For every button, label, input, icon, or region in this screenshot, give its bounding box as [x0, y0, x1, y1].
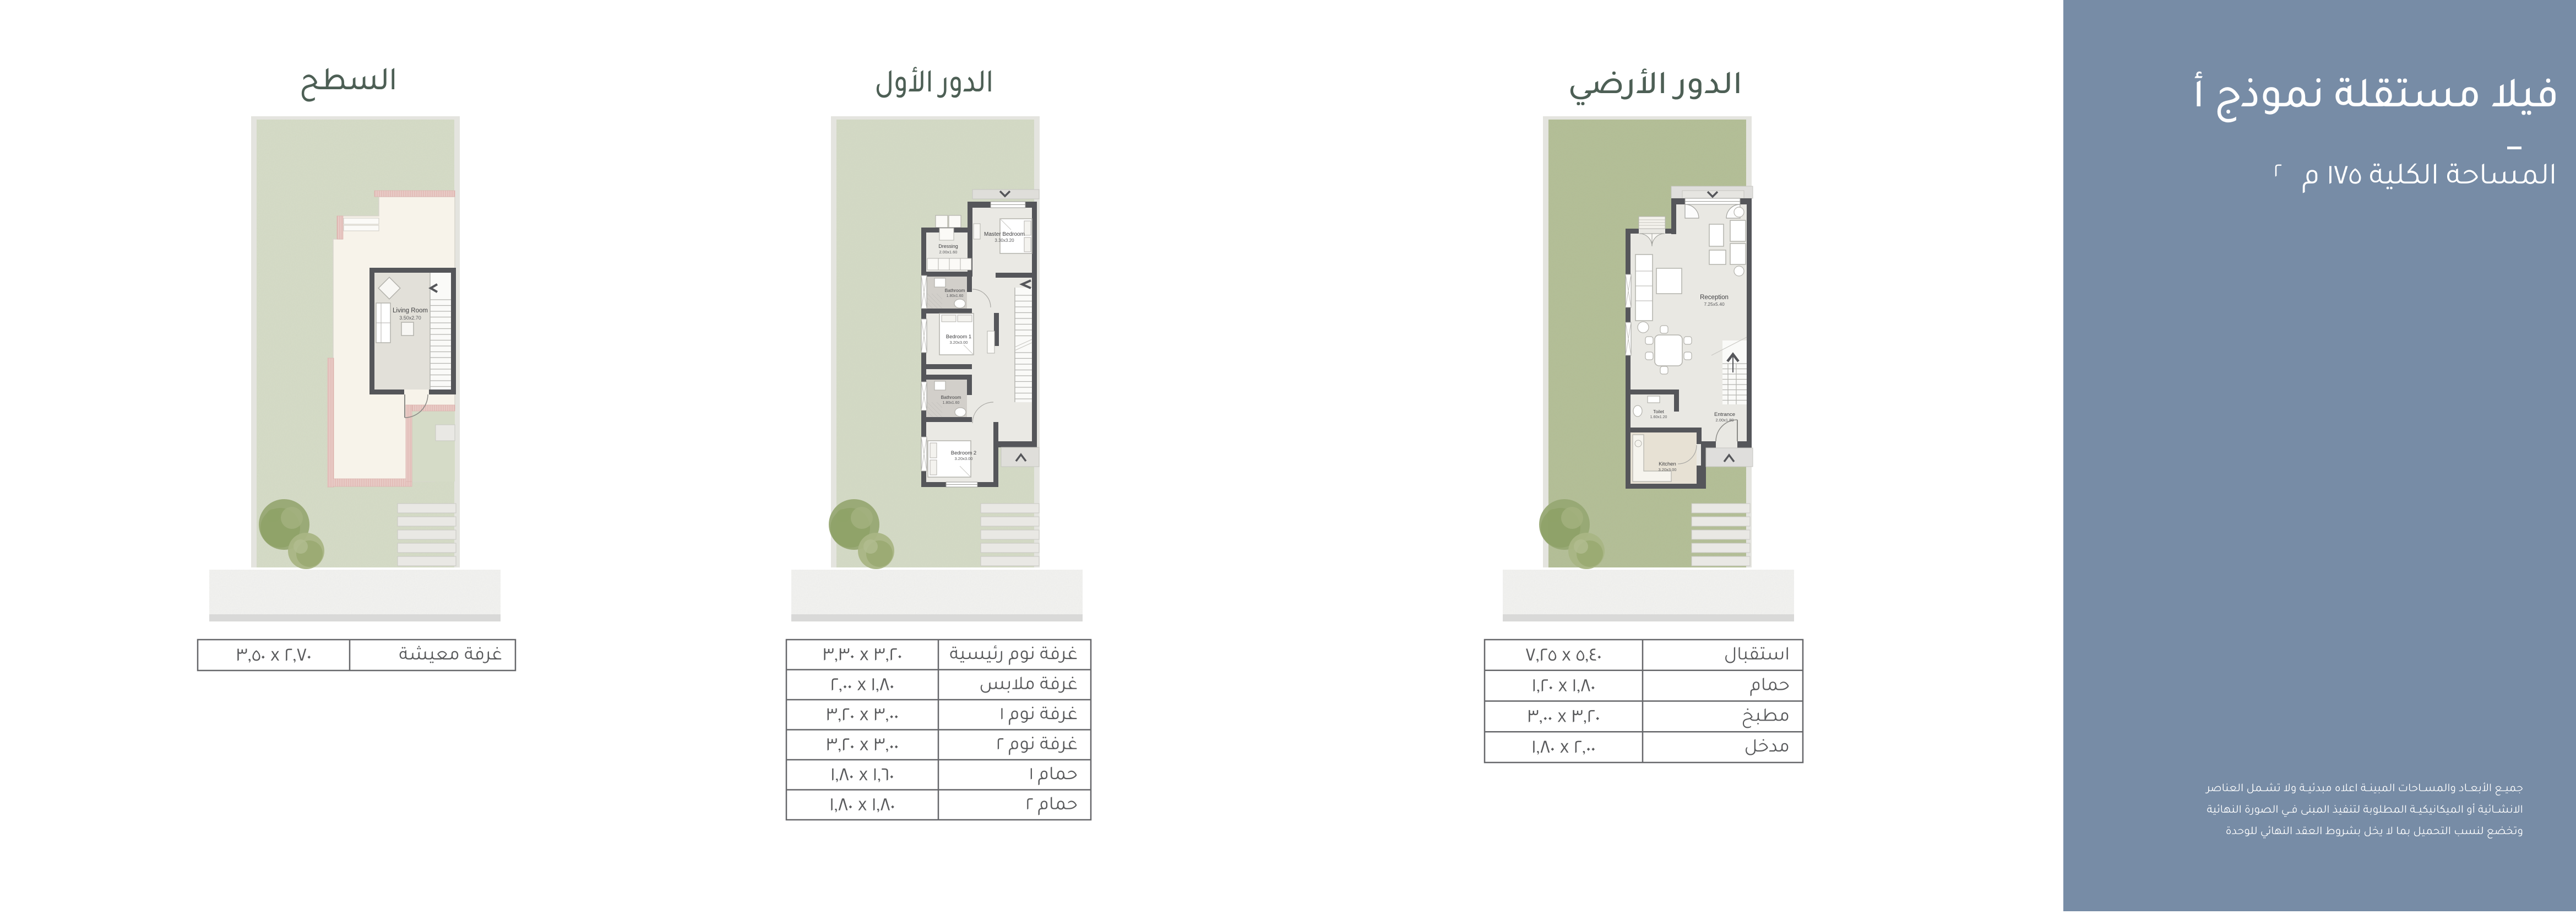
- svg-text:2.00x1.60: 2.00x1.60: [939, 250, 958, 255]
- svg-text:Bathroom: Bathroom: [945, 288, 965, 293]
- svg-text:1.80x1.60: 1.80x1.60: [947, 294, 964, 298]
- svg-text:3.20x3.00: 3.20x3.00: [1659, 467, 1677, 472]
- svg-text:Kitchen: Kitchen: [1659, 461, 1676, 467]
- svg-text:Toilet: Toilet: [1653, 409, 1664, 414]
- svg-text:3.50x2.70: 3.50x2.70: [399, 315, 421, 321]
- svg-text:3.20x3.00: 3.20x3.00: [955, 456, 973, 461]
- svg-text:Living Room: Living Room: [393, 307, 428, 314]
- svg-text:Entrance: Entrance: [1714, 412, 1735, 418]
- svg-text:Reception: Reception: [1700, 294, 1729, 301]
- svg-text:7.25x5.40: 7.25x5.40: [1704, 301, 1725, 307]
- svg-text:Bedroom 1: Bedroom 1: [946, 334, 971, 340]
- svg-text:Bedroom 2: Bedroom 2: [951, 450, 976, 456]
- svg-text:Bathroom: Bathroom: [941, 394, 961, 400]
- svg-text:2.00x1.80: 2.00x1.80: [1716, 418, 1734, 423]
- svg-text:Master Bedroom: Master Bedroom: [984, 231, 1025, 237]
- svg-text:1.60x1.20: 1.60x1.20: [1650, 415, 1667, 419]
- svg-text:3.20x3.00: 3.20x3.00: [950, 340, 968, 345]
- svg-text:1.80x1.60: 1.80x1.60: [943, 401, 960, 405]
- svg-text:Dressing: Dressing: [938, 244, 958, 249]
- svg-text:3.30x3.20: 3.30x3.20: [994, 238, 1014, 243]
